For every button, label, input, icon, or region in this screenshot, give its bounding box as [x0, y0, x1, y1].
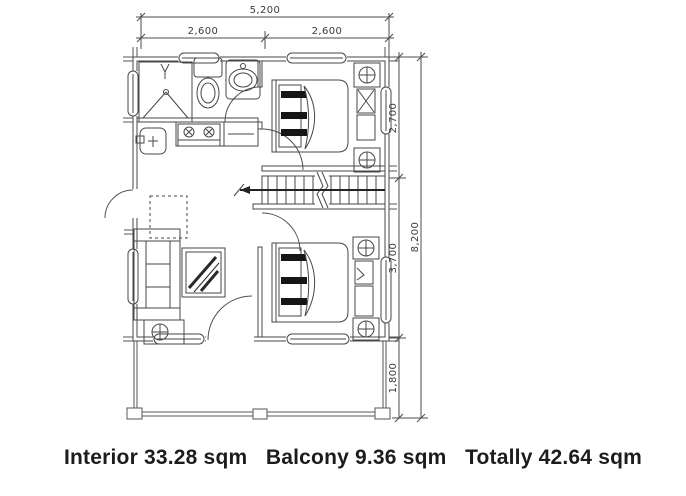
balcony-door-arc: [208, 296, 252, 340]
dim-top-left-label: 2,600: [188, 26, 219, 37]
bedroom1: [272, 63, 380, 172]
balcony-post: [127, 408, 142, 419]
balcony: [127, 341, 390, 419]
dim-right-middle-label: 3,700: [388, 243, 399, 274]
dim-right-total-label: 8,200: [410, 222, 421, 253]
shower-head-icon: [161, 64, 169, 79]
balcony-post: [253, 409, 267, 419]
floor-plan-page: 5,200 2,600 2,600 2,700 3,700 1,800 8,20…: [0, 0, 686, 496]
bedroom2: [272, 237, 379, 340]
bedroom2-door-arc: [262, 213, 300, 251]
bathroom-sink: [226, 60, 260, 99]
area-summary: Interior 33.28 sqm Balcony 9.36 sqm Tota…: [0, 446, 686, 470]
kitchen: [136, 122, 258, 238]
balcony-area-label: Balcony 9.36 sqm: [266, 446, 447, 470]
bathroom-door-arc: [225, 87, 260, 122]
balcony-post: [375, 408, 390, 419]
sofa: [134, 229, 180, 320]
dimension-lines: [136, 13, 428, 422]
dim-right-upper-label: 2,700: [388, 103, 399, 134]
interior-area-label: Interior 33.28 sqm: [64, 446, 247, 470]
nightstand-lamp: [354, 148, 380, 172]
bathroom: [139, 58, 260, 122]
floor-plan-drawing: 5,200 2,600 2,600 2,700 3,700 1,800 8,20…: [0, 0, 686, 432]
dim-right-lower-label: 1,800: [388, 363, 399, 394]
nightstand-lamp: [353, 237, 379, 259]
kitchen-basin: [136, 128, 166, 154]
shower-stall: [139, 62, 192, 122]
coffee-table: [182, 248, 225, 297]
floor-plan-svg: 5,200 2,600 2,600 2,700 3,700 1,800 8,20…: [0, 0, 686, 432]
dim-top-total-label: 5,200: [250, 5, 281, 16]
entry-door-arc: [105, 190, 133, 218]
toilet: [194, 58, 222, 108]
nightstand-lamp: [354, 63, 380, 87]
bed2-blanket-bars: [281, 254, 307, 305]
dresser: [357, 89, 375, 140]
dim-top-right-label: 2,600: [312, 26, 343, 37]
living-room: [134, 229, 225, 344]
total-area-label: Totally 42.64 sqm: [465, 446, 642, 470]
stove: [178, 124, 220, 146]
dresser: [355, 261, 373, 316]
stairs: [234, 172, 385, 208]
refrigerator-dashed: [150, 196, 187, 238]
bed1-blanket-bars: [281, 91, 307, 136]
exterior-walls: [133, 57, 389, 341]
